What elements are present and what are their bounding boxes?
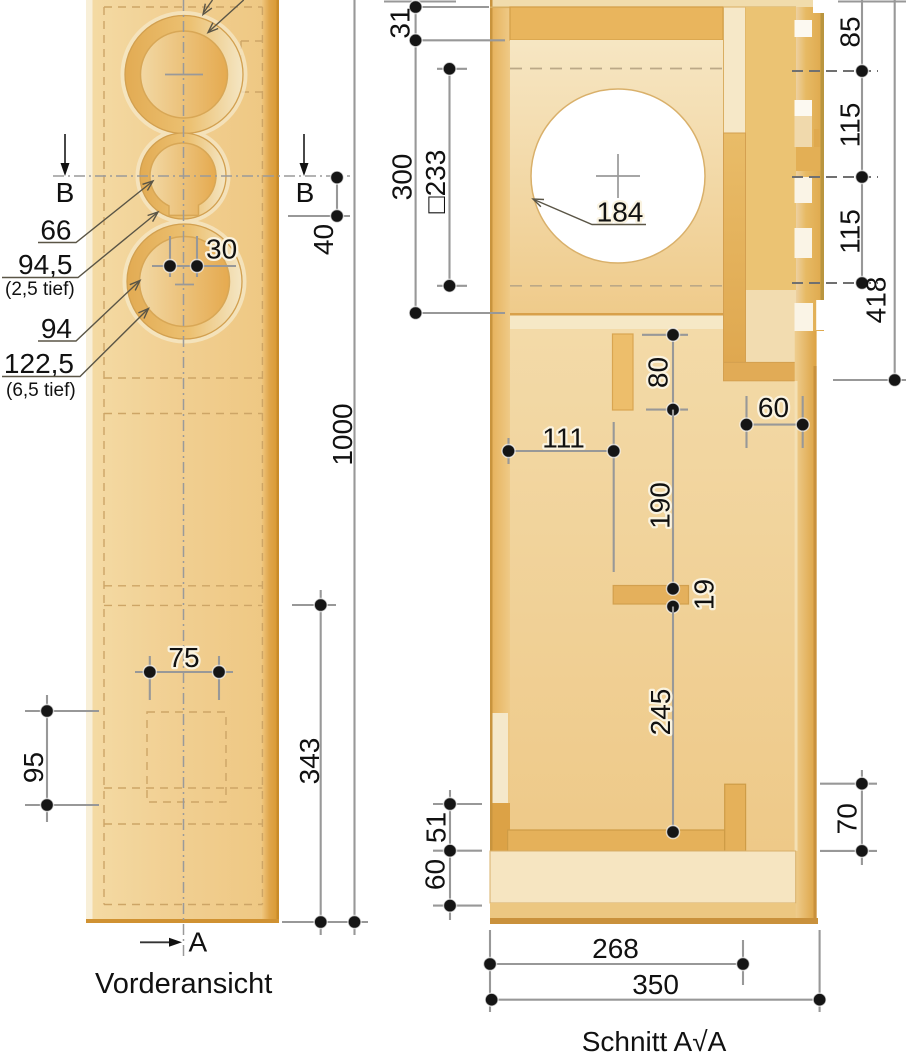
svg-text:B: B xyxy=(56,177,75,208)
svg-text:30: 30 xyxy=(206,234,237,265)
svg-text:Vorderansicht: Vorderansicht xyxy=(95,968,272,1000)
svg-text:115: 115 xyxy=(835,209,866,254)
svg-text:80: 80 xyxy=(643,357,674,388)
svg-text:60: 60 xyxy=(420,859,451,890)
svg-text:1000: 1000 xyxy=(327,403,358,465)
svg-text:95: 95 xyxy=(18,752,49,783)
svg-text:40: 40 xyxy=(308,224,339,255)
svg-text:51: 51 xyxy=(421,812,452,843)
svg-text:□233: □233 xyxy=(420,150,451,214)
svg-text:245: 245 xyxy=(645,689,676,736)
svg-text:300: 300 xyxy=(387,154,418,201)
svg-text:19: 19 xyxy=(689,579,720,610)
svg-text:66: 66 xyxy=(40,215,71,246)
svg-text:111: 111 xyxy=(542,423,585,454)
svg-text:184: 184 xyxy=(597,197,644,228)
svg-text:190: 190 xyxy=(645,482,676,529)
svg-text:Schnitt A√A: Schnitt A√A xyxy=(582,1026,727,1057)
svg-text:122,5: 122,5 xyxy=(4,348,74,379)
svg-text:70: 70 xyxy=(832,803,863,834)
svg-text:115: 115 xyxy=(835,103,866,148)
svg-text:418: 418 xyxy=(861,277,892,324)
svg-text:75: 75 xyxy=(168,642,199,673)
svg-text:350: 350 xyxy=(632,969,679,1000)
svg-text:94: 94 xyxy=(41,313,72,344)
svg-text:(2,5 tief): (2,5 tief) xyxy=(5,279,75,300)
svg-text:60: 60 xyxy=(758,392,789,423)
svg-text:31: 31 xyxy=(385,7,416,38)
svg-text:(6,5 tief): (6,5 tief) xyxy=(6,380,76,401)
svg-text:343: 343 xyxy=(294,738,325,785)
svg-text:A: A xyxy=(189,927,208,958)
svg-text:268: 268 xyxy=(592,933,639,964)
svg-text:85: 85 xyxy=(835,16,866,47)
svg-text:B: B xyxy=(296,177,315,208)
svg-text:94,5: 94,5 xyxy=(18,249,73,280)
